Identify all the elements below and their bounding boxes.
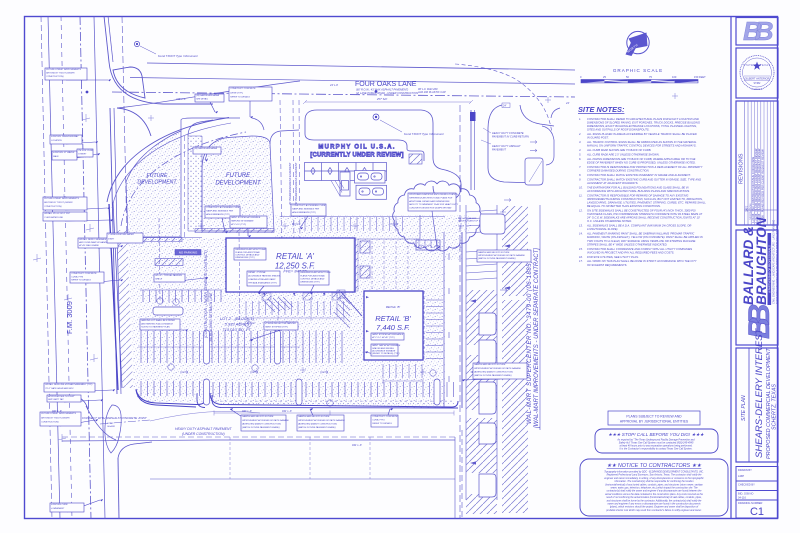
svg-text:★★ NOTICE TO CONTRACTORS: ★★ NOTICE TO CONTRACTORS ★★ bbox=[607, 463, 703, 469]
svg-text:16.: 16. bbox=[579, 255, 583, 259]
svg-text:APPROVED MULTI-COUNT: APPROVED MULTI-COUNT bbox=[47, 395, 75, 398]
svg-text:DEVELOPMENT: DEVELOPMENT bbox=[215, 181, 262, 187]
svg-text:FOUR OAKS LANE: FOUR OAKS LANE bbox=[355, 81, 417, 88]
svg-text:CONCRETE DESIGN FOR DUMPSTER P: CONCRETE DESIGN FOR DUMPSTER PAD bbox=[409, 206, 452, 209]
svg-text:(AGENCIES) (DANDY CONSTRUCTION: (AGENCIES) (DANDY CONSTRUCTION) bbox=[474, 370, 513, 373]
svg-text:BMC WATT TAP: BMC WATT TAP bbox=[48, 398, 64, 401]
svg-text:OF SCHERTZ REQUIREMENTS.: OF SCHERTZ REQUIREMENTS. bbox=[587, 263, 627, 267]
svg-text:RETAIL 'B': RETAIL 'B' bbox=[386, 305, 401, 309]
svg-text:probable shorter cost which ma: probable shorter cost which may result f… bbox=[605, 509, 702, 512]
svg-text:2-7-06 PLANS REVISED PER CL: 2-7-06 PLANS REVISED PER CLIENT REQUEST … bbox=[760, 149, 764, 223]
svg-text:found TXDOT Type I Monument: found TXDOT Type I Monument bbox=[158, 54, 198, 58]
svg-text:CONSTRUCTION): CONSTRUCTION) bbox=[44, 206, 62, 208]
svg-text:CONSTRUCT CONCRETE: CONSTRUCT CONCRETE bbox=[230, 88, 256, 90]
svg-text:HEAVY DUTY ASPHALT: HEAVY DUTY ASPHALT bbox=[492, 144, 521, 148]
svg-text:50: 50 bbox=[626, 75, 629, 79]
svg-text:(MATCH FUTURE PAVEMENT GRADE): (MATCH FUTURE PAVEMENT GRADE) bbox=[242, 426, 280, 429]
svg-text:4.: 4. bbox=[579, 148, 581, 152]
svg-text:ALIGNMENT AT ADJACENT ROADWAYS: ALIGNMENT AT ADJACENT ROADWAYS. bbox=[586, 181, 639, 185]
svg-text:SEE DETAIL: SEE DETAIL bbox=[196, 97, 209, 100]
svg-text:(AGENCIES) (DANDY CONSTRUCTION: (AGENCIES) (DANDY CONSTRUCTION) bbox=[298, 422, 337, 425]
svg-text:941' L.P.: 941' L.P. bbox=[352, 443, 362, 447]
svg-text:PAINT STRIPED ACCESSIBLE: PAINT STRIPED ACCESSIBLE bbox=[231, 216, 261, 219]
svg-text:24': 24' bbox=[565, 101, 570, 105]
svg-text:sewer, water, gas, television,: sewer, water, gas, television, telephone… bbox=[610, 487, 698, 490]
svg-text:(MATCH FUTURE PAVEMENT GRADE): (MATCH FUTURE PAVEMENT GRADE) bbox=[478, 257, 516, 260]
svg-text:ALL PAVING DIMENSIONS ARE TO B: ALL PAVING DIMENSIONS ARE TO BACK OF CUR… bbox=[586, 157, 696, 161]
svg-text:CONSTRUCT ACCESSIBLE CURB: CONSTRUCT ACCESSIBLE CURB bbox=[206, 206, 240, 209]
svg-text:C1: C1 bbox=[750, 506, 764, 518]
svg-text:CONSTRUCTION): CONSTRUCTION) bbox=[46, 76, 64, 78]
svg-text:3.: 3. bbox=[579, 140, 581, 144]
svg-text:(plans), which revisions shoul: (plans), which revisions should the proj… bbox=[610, 506, 699, 509]
svg-text:ADA STANDARDS (TYP.): ADA STANDARDS (TYP.) bbox=[205, 213, 230, 216]
svg-text:PLANS SUBJECT TO REVIEW AND: PLANS SUBJECT TO REVIEW AND bbox=[626, 415, 682, 419]
svg-text:found TXDOT Type I Monument: found TXDOT Type I Monument bbox=[404, 132, 444, 136]
svg-text:and structures shall be borne: and structures shall be borne by the con… bbox=[607, 499, 702, 502]
svg-text:CONTRACTOR SHALL REFER TO ARCH: CONTRACTOR SHALL REFER TO ARCHITECTURAL … bbox=[587, 117, 699, 121]
svg-text:ALL WORK ON THIS PLAN SHALL BE: ALL WORK ON THIS PLAN SHALL BE DONE IN S… bbox=[586, 259, 697, 263]
svg-text:& PAVEMENT: & PAVEMENT bbox=[51, 507, 65, 510]
svg-text:SPACES AND INSTALL: SPACES AND INSTALL bbox=[372, 347, 395, 350]
svg-text:ALL PAVEMENT MARKING PAINT SHA: ALL PAVEMENT MARKING PAINT SHALL BE SHER… bbox=[586, 232, 694, 236]
svg-text:17.: 17. bbox=[579, 259, 583, 263]
svg-text:CHECKED BY: CHECKED BY bbox=[738, 483, 755, 487]
svg-text:30' BUILDING SETBACK LINE: 30' BUILDING SETBACK LINE bbox=[209, 292, 213, 342]
svg-text:5.: 5. bbox=[579, 153, 581, 157]
svg-text:CONSTRUCTION): CONSTRUCTION) bbox=[41, 422, 59, 424]
svg-text:CORNERS DAMAGED DURING CONSTRU: CORNERS DAMAGED DURING CONSTRUCTION. bbox=[587, 169, 650, 173]
svg-text:REFER TO DETAILS: REFER TO DETAILS bbox=[230, 96, 250, 99]
svg-text:LOT 2 - (BLOCK 1): LOT 2 - (BLOCK 1) bbox=[220, 316, 255, 321]
svg-text:DRAWING NUMBER: DRAWING NUMBER bbox=[738, 501, 763, 505]
svg-text:FUTURE STREET IMPROVEMENTS: FUTURE STREET IMPROVEMENTS bbox=[41, 413, 76, 415]
svg-text:MAIN: MAIN bbox=[53, 155, 59, 158]
svg-text:(MATCH FUTURE PAVEMENT GRADE): (MATCH FUTURE PAVEMENT GRADE) bbox=[474, 374, 512, 377]
svg-text:LOADING ZONE AND RAMP: LOADING ZONE AND RAMP bbox=[248, 278, 276, 281]
svg-text:BEYOND BY TXDOT (UNDER: BEYOND BY TXDOT (UNDER bbox=[41, 417, 70, 419]
svg-text:owner and engineer if any erro: owner and engineer if any errors or disc… bbox=[607, 503, 701, 506]
svg-text:GILBERT ANTERIOR: GILBERT ANTERIOR bbox=[745, 77, 770, 81]
svg-text:RETAIL 'B': RETAIL 'B' bbox=[375, 314, 411, 323]
svg-text:(2) LANE PUBLIC ROAD - UNDER C: (2) LANE PUBLIC ROAD - UNDER CONSTRUCTIO… bbox=[356, 91, 418, 95]
svg-text:LICENSED: LICENSED bbox=[752, 89, 763, 91]
svg-text:1.: 1. bbox=[579, 117, 581, 121]
svg-text:STATE OF TEXAS: STATE OF TEXAS bbox=[743, 64, 770, 67]
svg-text:(UNDER CONSTRUCTION): (UNDER CONSTRUCTION) bbox=[182, 432, 225, 436]
svg-text:DETAIL - TYPICAL: DETAIL - TYPICAL bbox=[248, 271, 266, 274]
svg-text:BEYOND BY TXDOT (UNDER: BEYOND BY TXDOT (UNDER bbox=[46, 73, 75, 75]
svg-text:AND PAINTED IN ACCORDANCE: AND PAINTED IN ACCORDANCE bbox=[140, 322, 173, 325]
svg-text:PLANS FOR ADDITIONAL: PLANS FOR ADDITIONAL bbox=[300, 274, 326, 277]
svg-text:result of not confirming the a: result of not confirming the actual loca… bbox=[606, 496, 702, 499]
svg-text:SHEARS-DELERY INTEREST: SHEARS-DELERY INTEREST bbox=[754, 327, 765, 458]
svg-text:TO 6" GATE VALVE AND BOX: TO 6" GATE VALVE AND BOX bbox=[45, 387, 74, 390]
svg-text:IMPROVEMENT ACCESSES OF PAITS: IMPROVEMENT ACCESSES OF PAITS GARAGE bbox=[474, 367, 521, 370]
svg-text:3.933 ACRES: 3.933 ACRES bbox=[225, 322, 250, 327]
svg-text:NO PARKING: NO PARKING bbox=[179, 251, 198, 255]
svg-text:BB: BB bbox=[743, 16, 773, 46]
svg-text:TWO COATS TO A CLEAN, DRY SURF: TWO COATS TO A CLEAN, DRY SURFACE USING … bbox=[587, 239, 696, 243]
svg-text:IMPROVEMENT ACCESSES OF PAITS: IMPROVEMENT ACCESSES OF PAITS GARAGE bbox=[242, 419, 289, 422]
svg-text:ACCORDANCE WITH ARCHITECTURAL: ACCORDANCE WITH ARCHITECTURAL BUILDING P… bbox=[586, 189, 690, 193]
svg-text:RAMP AND SIDEWALK PER: RAMP AND SIDEWALK PER bbox=[292, 208, 319, 211]
svg-text:SITE NOTES:: SITE NOTES: bbox=[578, 105, 625, 114]
svg-text:ALL CURB RADII SHOWN ARE TO BA: ALL CURB RADII SHOWN ARE TO BACK OF CURB… bbox=[586, 148, 652, 152]
svg-text:14.: 14. bbox=[579, 232, 583, 236]
svg-text:10103 DOVE MEADOW DR. SAN ANT: 10103 DOVE MEADOW DR. SAN ANTONIO, TX 78… bbox=[776, 224, 779, 304]
svg-text:7,440 S.F.: 7,440 S.F. bbox=[376, 323, 410, 332]
svg-text:PAINT STRIPING (TYP.): PAINT STRIPING (TYP.) bbox=[265, 325, 288, 328]
svg-text:EXISTING CURB: EXISTING CURB bbox=[51, 504, 68, 506]
svg-text:CONSTRUCT CONCRETE: CONSTRUCT CONCRETE bbox=[71, 273, 97, 275]
svg-text:DIMENSIONS OF SLOPED PAVING, E: DIMENSIONS OF SLOPED PAVING, EXIT PORCHE… bbox=[587, 121, 700, 125]
svg-text:PAINT STRIPED ACCESS AISLE: PAINT STRIPED ACCESS AISLE bbox=[372, 333, 404, 336]
svg-text:SPACE: SPACE bbox=[155, 277, 163, 280]
svg-text:NOTED TO PAVEMENT PLAN: NOTED TO PAVEMENT PLAN bbox=[141, 326, 170, 329]
svg-text:[CONSTRUCTION - UNDER SEPARATE: [CONSTRUCTION - UNDER SEPARATE CONTRACT] bbox=[204, 249, 208, 339]
svg-text:LMP: LMP bbox=[738, 474, 744, 478]
svg-text:DRAWN BY: DRAWN BY bbox=[738, 468, 752, 472]
svg-text:PARKING LOT SHALL BE STRIPED: PARKING LOT SHALL BE STRIPED bbox=[141, 319, 175, 322]
svg-text:HEAVY DUTY CONCRETE: HEAVY DUTY CONCRETE bbox=[492, 131, 524, 135]
svg-text:FOR SITE UTILITIES, SEE UTILIT: FOR SITE UTILITIES, SEE UTILITY PLAN. bbox=[587, 255, 639, 259]
svg-text:(W) LANDSCAPE AREA: (W) LANDSCAPE AREA bbox=[194, 147, 217, 150]
svg-text:ADDITIONAL DETAILS AND DIMENSI: ADDITIONAL DETAILS AND DIMENSIONS bbox=[408, 200, 450, 203]
svg-text:BID, JOB NO: BID, JOB NO bbox=[738, 492, 753, 496]
svg-text:MURPHY OIL U.S.A.: MURPHY OIL U.S.A. bbox=[318, 145, 395, 151]
svg-text:24' x 8' - TYPICAL PARKING: 24' x 8' - TYPICAL PARKING bbox=[154, 274, 182, 277]
svg-text:THE EARTHWORK FOR ALL BUILDING: THE EARTHWORK FOR ALL BUILDING FOUNDATIO… bbox=[587, 186, 689, 190]
svg-text:IMPROVEMENTS DURING CONSTRUCTI: IMPROVEMENTS DURING CONSTRUCTION, SUCH A… bbox=[587, 197, 703, 201]
svg-text:150 FEET: 150 FEET bbox=[694, 75, 706, 79]
svg-text:AT 2'-2.5' (TYP.): AT 2'-2.5' (TYP.) bbox=[230, 223, 246, 226]
svg-text:SAMPLE AND BE INTO FUTURE: SAMPLE AND BE INTO FUTURE bbox=[298, 415, 330, 418]
svg-text:CONTRACTOR IS RESPONSIBLE FOR: CONTRACTOR IS RESPONSIBLE FOR REPAIRS OF… bbox=[587, 194, 688, 198]
svg-text:13.: 13. bbox=[579, 224, 583, 228]
svg-text:REFERENCE ARCHITECTURAL: REFERENCE ARCHITECTURAL bbox=[300, 271, 332, 274]
svg-text:PARKING W/ SIGNAGE: PARKING W/ SIGNAGE bbox=[231, 220, 254, 223]
svg-text:CONTRACTOR SHALL MATCH EXISTIN: CONTRACTOR SHALL MATCH EXISTING PAVEMENT… bbox=[587, 173, 691, 177]
svg-text:CONTRACTOR IS RESPONSIBLE FOR: CONTRACTOR IS RESPONSIBLE FOR PROTECTION… bbox=[587, 165, 703, 169]
svg-text:REFER TO DETAILS: REFER TO DETAILS bbox=[71, 279, 91, 282]
svg-text:BE EQUAL TO OR BETTER THAN EXI: BE EQUAL TO OR BETTER THAN EXISTING COND… bbox=[587, 204, 661, 208]
svg-text:RAMP AND SIDEWALK PER: RAMP AND SIDEWALK PER bbox=[206, 210, 233, 213]
svg-text:7.: 7. bbox=[579, 165, 581, 169]
svg-text:CURB (TYP.): CURB (TYP.) bbox=[372, 420, 385, 422]
svg-text:GRAPHIC SCALE: GRAPHIC SCALE bbox=[613, 68, 663, 73]
svg-text:PAINT 'VAN' AT ACCESSIBLE: PAINT 'VAN' AT ACCESSIBLE bbox=[372, 344, 401, 347]
svg-text:SITES AND OUTFALLS OF ROOF DOW: SITES AND OUTFALLS OF ROOF DOWNSPOUTS. bbox=[587, 128, 650, 132]
svg-text:257' S/F: 257' S/F bbox=[376, 97, 388, 101]
svg-text:SAMPLE AND BE INTO FUTURE: SAMPLE AND BE INTO FUTURE bbox=[478, 251, 510, 254]
svg-text:engineer and owner immediately: engineer and owner immediately, in writi… bbox=[604, 477, 704, 480]
svg-text:ALL SIDEWALKS SHALL BE A.D.A.: ALL SIDEWALKS SHALL BE A.D.A. COMPLIANT … bbox=[586, 224, 691, 228]
svg-text:IMPROVEMENT ACCESSES OF PAITS: IMPROVEMENT ACCESSES OF PAITS GARAGE bbox=[478, 254, 525, 257]
svg-text:24' L.P.: 24' L.P. bbox=[329, 83, 339, 87]
svg-text:941' L.P.: 941' L.P. bbox=[52, 409, 62, 413]
svg-text:MARKING', WHITE (ON ASPHALT),: MARKING', WHITE (ON ASPHALT), YELLOW (ON… bbox=[587, 235, 703, 239]
svg-text:Topography information provide: Topography information provided by DDC -… bbox=[604, 471, 704, 474]
svg-text:4" WIDE REFLECTIVE PAINTED: 4" WIDE REFLECTIVE PAINTED bbox=[265, 322, 296, 325]
svg-text:FUTURE STREET IMPROVEMENTS: FUTURE STREET IMPROVEMENTS bbox=[46, 69, 81, 71]
svg-text:THICKNESS CLASS, PSI COMPRESSI: THICKNESS CLASS, PSI COMPRESSIVE STRENGT… bbox=[587, 212, 702, 216]
svg-text:FACILITY TO PAVEMENT PLAN FOR: FACILITY TO PAVEMENT PLAN FOR HEAVY DUTY bbox=[409, 203, 458, 206]
svg-text:PER ADA STANDARDS (TYP.): PER ADA STANDARDS (TYP.) bbox=[248, 281, 277, 284]
svg-text:IN GUARD POST.: IN GUARD POST. bbox=[587, 136, 609, 140]
svg-text:15.: 15. bbox=[579, 247, 583, 251]
svg-text:REFERENCE ARCHITECTURAL PLANS: REFERENCE ARCHITECTURAL PLANS FOR bbox=[409, 197, 453, 200]
svg-text:25: 25 bbox=[603, 75, 606, 79]
svg-text:ESMT: ESMT bbox=[108, 238, 115, 240]
svg-text:04-116: 04-116 bbox=[738, 496, 746, 500]
svg-text:ISLAND: ISLAND bbox=[107, 425, 115, 428]
svg-text:FUTURE: FUTURE bbox=[226, 173, 251, 179]
svg-text:941' L.P.: 941' L.P. bbox=[282, 409, 292, 413]
svg-text:INSTALL 215 LF OF 8" PVC: INSTALL 215 LF OF 8" PVC bbox=[44, 212, 70, 215]
svg-text:(MATCH FUTURE PAVEMENT GRADE): (MATCH FUTURE PAVEMENT GRADE) bbox=[298, 426, 336, 429]
svg-text:ON SITE SIDEWALKS SHALL BE CON: ON SITE SIDEWALKS SHALL BE CONSTRUCTED O… bbox=[587, 209, 696, 213]
svg-text:IMPROVEMENT ACCESSES OF PAITS: IMPROVEMENT ACCESSES OF PAITS GARAGE bbox=[298, 419, 345, 422]
svg-text:PAVEMENT: PAVEMENT bbox=[492, 148, 506, 152]
svg-text:information. The contractor(s: information. The contractor(s) shall be … bbox=[614, 480, 694, 483]
svg-text:24" O.C.E.W. SIDEWALKS ARE APR: 24" O.C.E.W. SIDEWALKS ARE APRONS SHALL … bbox=[586, 216, 701, 220]
svg-text:It is the Contractor's respons: It is the Contractor's responsibility to… bbox=[620, 448, 693, 451]
svg-text:8.: 8. bbox=[579, 173, 581, 177]
svg-text:BEYOND BY TXDOT (UNDER: BEYOND BY TXDOT (UNDER bbox=[44, 202, 73, 204]
svg-text:TIE FOR CURB: TIE FOR CURB bbox=[78, 150, 93, 152]
svg-text:RETAIL 'A': RETAIL 'A' bbox=[276, 252, 314, 261]
svg-text:STRIPES SHALL BE 4" WIDE UNLES: STRIPES SHALL BE 4" WIDE UNLESS OTHERWIS… bbox=[587, 242, 668, 246]
svg-text:ADA STANDARDS (TYP.): ADA STANDARDS (TYP.) bbox=[291, 211, 316, 214]
svg-text:EXISTING TREE/DRIVEWAY: EXISTING TREE/DRIVEWAY bbox=[51, 135, 79, 138]
svg-text:9.: 9. bbox=[579, 178, 581, 182]
svg-text:0: 0 bbox=[580, 75, 582, 79]
svg-text:97382: 97382 bbox=[754, 82, 761, 85]
svg-text:REFERENCE ARCHITECTURAL: REFERENCE ARCHITECTURAL bbox=[235, 248, 267, 251]
svg-text:24': 24' bbox=[503, 104, 507, 108]
svg-text:DATE: DATE bbox=[746, 205, 749, 212]
svg-text:BRAUGHTON: BRAUGHTON bbox=[754, 217, 769, 305]
svg-text:LONGITUDINAL SLOPE).: LONGITUDINAL SLOPE). bbox=[587, 227, 618, 231]
svg-text:INSTALL NEW 5' SIDEWALK: INSTALL NEW 5' SIDEWALK bbox=[79, 238, 107, 241]
svg-text:PAVEMENT IN CURB RETURN: PAVEMENT IN CURB RETURN bbox=[492, 135, 529, 139]
svg-text:245' L.F.: 245' L.F. bbox=[175, 97, 186, 101]
svg-text:(horizontal/vertical) of any b: (horizontal/vertical) of any buried cabl… bbox=[605, 483, 703, 486]
svg-text:INSTALL NEW FIRE HYDRANT ASSEM: INSTALL NEW FIRE HYDRANT ASSEMBLY (TYP) bbox=[45, 383, 92, 386]
svg-text:40' INGRESS/EGRESS EASEMENT: 40' INGRESS/EGRESS EASEMENT bbox=[294, 162, 298, 205]
svg-text:ACCESSIBLE SIGNAGE: ACCESSIBLE SIGNAGE bbox=[371, 349, 396, 352]
svg-text:(AGENCIES) (DANDY CONSTRUCTION: (AGENCIES) (DANDY CONSTRUCTION) bbox=[242, 422, 281, 425]
svg-text:ALL CURB RADII ARE 2.5' UNLESS: ALL CURB RADII ARE 2.5' UNLESS OTHERWISE… bbox=[586, 153, 660, 157]
svg-text:LANDSCAPING, DRAINAGE, UTILITI: LANDSCAPING, DRAINAGE, UTILITIES, PAVEME… bbox=[587, 201, 706, 205]
svg-text:REVISIONS: REVISIONS bbox=[739, 153, 745, 184]
svg-text:(REFER TO DETAILS) (TYP.): (REFER TO DETAILS) (TYP.) bbox=[372, 352, 400, 355]
svg-text:Registered Professional Land S: Registered Professional Land Surveyors, … bbox=[607, 474, 703, 477]
svg-text:MANUAL ON UNIFORM TRAFFIC CONT: MANUAL ON UNIFORM TRAFFIC CONTROL DEVICE… bbox=[587, 144, 697, 148]
svg-text:ACCESSIBLE PARKING SPACES,: ACCESSIBLE PARKING SPACES, bbox=[247, 275, 281, 278]
svg-text:CONTROL DETAILS AND: CONTROL DETAILS AND bbox=[235, 253, 260, 256]
svg-text:A PARTNERSHIP OF PROFESSIONALS: A PARTNERSHIP OF PROFESSIONALS bbox=[767, 245, 771, 293]
svg-text:2.: 2. bbox=[578, 132, 581, 136]
svg-text:ALR 200 PLASTIC CAP: ALR 200 PLASTIC CAP bbox=[417, 90, 446, 94]
svg-text:CONSTRUCT ACCESSIBLE CURB: CONSTRUCT ACCESSIBLE CURB bbox=[292, 204, 326, 207]
svg-text:100: 100 bbox=[672, 75, 677, 79]
svg-text:CONTROL DETAILS AND: CONTROL DETAILS AND bbox=[300, 277, 325, 280]
svg-text:2' WIDE EXISTING WATER: 2' WIDE EXISTING WATER bbox=[107, 233, 134, 236]
svg-text:FUTURE STREET IMPROVEMENTS: FUTURE STREET IMPROVEMENTS bbox=[44, 198, 79, 200]
svg-text:PROPOSED DUMPSTER ENCLOSURE LO: PROPOSED DUMPSTER ENCLOSURE LOCATION bbox=[409, 193, 458, 196]
svg-text:SITE PLAN: SITE PLAN bbox=[741, 395, 747, 421]
svg-text:contractor(s) shall notify the: contractor(s) shall notify the owner and… bbox=[607, 490, 702, 493]
svg-text:10.: 10. bbox=[579, 186, 583, 190]
svg-text:12.: 12. bbox=[579, 209, 583, 213]
svg-text:FUTURE: FUTURE bbox=[146, 173, 168, 179]
svg-text:★★★ STOP! CALL BEFORE YOU D: ★★★ STOP! CALL BEFORE YOU DIG! ★★★ bbox=[608, 432, 705, 437]
svg-text:APPROVAL BY JURISDICTIONAL ENT: APPROVAL BY JURISDICTIONAL ENTITIES bbox=[620, 420, 689, 424]
svg-text:AT 2' O.C. AT 45'' (TYP.): AT 2' O.C. AT 45'' (TYP.) bbox=[371, 336, 395, 339]
svg-text:STREET: STREET bbox=[78, 153, 87, 155]
svg-text:C-900 WATER LINE: C-900 WATER LINE bbox=[44, 216, 63, 219]
svg-text:EDGE OF PAVEMENT WHEN NO CURB: EDGE OF PAVEMENT WHEN NO CURB IS PROPOSE… bbox=[587, 161, 696, 165]
svg-text:CURB (TYP): CURB (TYP) bbox=[71, 276, 83, 278]
svg-text:CONTRACTOR SHALL MATCH EXISTIN: CONTRACTOR SHALL MATCH EXISTING CURB AND… bbox=[587, 178, 701, 182]
svg-text:EXISTING 12" WATER: EXISTING 12" WATER bbox=[53, 151, 75, 154]
svg-text:ALL SIGNS PLACED IN AREAS ACCE: ALL SIGNS PLACED IN AREAS ACCESSIBLE BY … bbox=[586, 132, 697, 136]
svg-text:DEVELOPMENT: DEVELOPMENT bbox=[137, 180, 177, 186]
svg-text:REFER TO DETAILS: REFER TO DETAILS bbox=[372, 422, 392, 425]
svg-text:[WAL-MART IMPROVEMENTS - UNDER: [WAL-MART IMPROVEMENTS - UNDER SEPARATE … bbox=[534, 248, 540, 429]
svg-text:6.: 6. bbox=[579, 157, 581, 161]
svg-text:11.: 11. bbox=[579, 194, 583, 198]
svg-text:INVOLVED IN PROJECT AND PAY AL: INVOLVED IN PROJECT AND PAY ALL REQUIRED… bbox=[587, 250, 675, 254]
svg-text:MASTER PLANS/TOP: MASTER PLANS/TOP bbox=[458, 220, 479, 223]
svg-text:DRIVE (TYP),: DRIVE (TYP), bbox=[230, 92, 243, 94]
svg-text:713,013 SQ. FT.: 713,013 SQ. FT. bbox=[222, 327, 251, 332]
svg-text:HEAVY DUTY ASPHALT PAVEMENT: HEAVY DUTY ASPHALT PAVEMENT bbox=[175, 427, 232, 431]
svg-text:SAMPLE AND BE INTO FUTURE: SAMPLE AND BE INTO FUTURE bbox=[242, 415, 274, 418]
svg-text:75: 75 bbox=[649, 75, 652, 79]
svg-text:DIMENSIONS, EXACT BUILDING ENT: DIMENSIONS, EXACT BUILDING ENTRANCE LOCA… bbox=[587, 124, 697, 128]
svg-text:AT 4%' MAX GRADE: AT 4%' MAX GRADE bbox=[78, 244, 99, 247]
svg-text:AND CURB RAMP W/ HANDRAIL: AND CURB RAMP W/ HANDRAIL bbox=[78, 241, 111, 244]
svg-text:ALL TRAFFIC CONTROL SIGNS SHAL: ALL TRAFFIC CONTROL SIGNS SHALL BE FABRI… bbox=[586, 140, 697, 144]
svg-text:LOCATION: LOCATION bbox=[51, 139, 62, 142]
svg-text:DIMENSIONS (TYP.): DIMENSIONS (TYP.) bbox=[300, 282, 320, 284]
svg-text:941' L.P.: 941' L.P. bbox=[242, 409, 252, 413]
svg-text:O.C. UNLESS OTHERWISE NOTED.: O.C. UNLESS OTHERWISE NOTED. bbox=[587, 219, 632, 223]
svg-text:40' INGRESS/EGRESS EASEMENT: 40' INGRESS/EGRESS EASEMENT bbox=[288, 162, 292, 205]
svg-text:DIMENSIONS (TYP.): DIMENSIONS (TYP.) bbox=[235, 257, 255, 259]
svg-text:(60' R.O.W., 43' MAX ASPHALT P: (60' R.O.W., 43' MAX ASPHALT PAVEMENT) bbox=[356, 88, 408, 92]
svg-text:CONTRACTOR SHALL COORDINATE AN: CONTRACTOR SHALL COORDINATE AND COMPLY W… bbox=[587, 247, 692, 251]
svg-text:F.M. 3009: F.M. 3009 bbox=[65, 301, 74, 334]
svg-text:CONSTRUCT CONCRETE: CONSTRUCT CONCRETE bbox=[372, 416, 398, 418]
svg-text:[CURRENTLY UNDER REVIEW]: [CURRENTLY UNDER REVIEW] bbox=[310, 153, 403, 159]
svg-text:PLANS FOR ADDITIONAL: PLANS FOR ADDITIONAL bbox=[235, 251, 261, 254]
svg-text:SAMPLE AND BE INTO FUTURE: SAMPLE AND BE INTO FUTURE bbox=[474, 363, 506, 366]
svg-text:(W) LANDSCAPE AREA: (W) LANDSCAPE AREA bbox=[196, 94, 219, 97]
svg-text:actual conditions versus the d: actual conditions versus the data contai… bbox=[605, 493, 703, 496]
svg-text:SCHERTZ, TEXAS: SCHERTZ, TEXAS bbox=[772, 384, 778, 430]
